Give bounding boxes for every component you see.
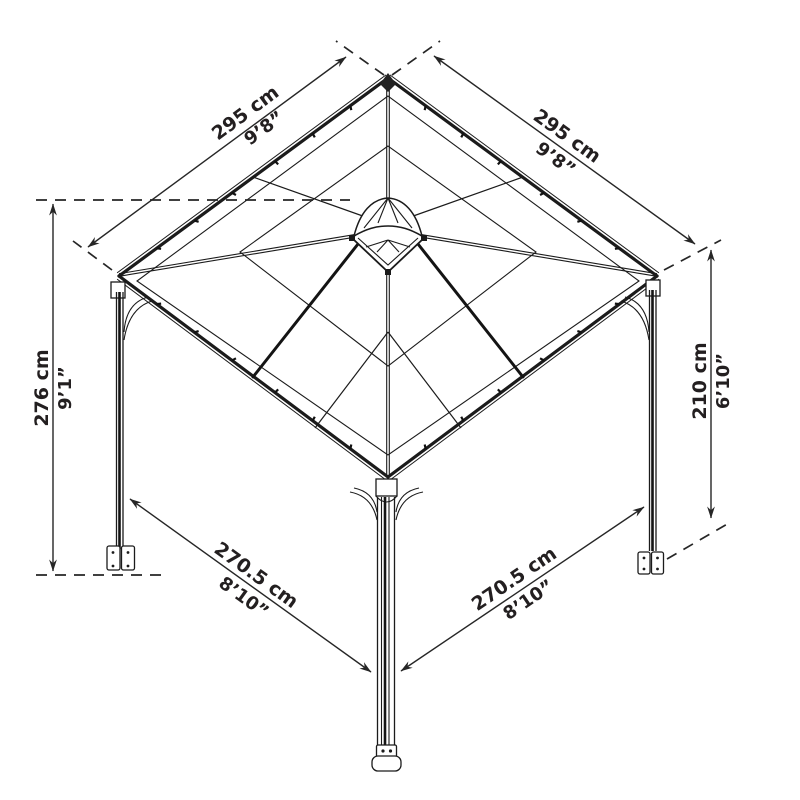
diagram-line: [421, 235, 427, 241]
diagram-line: [124, 301, 152, 340]
post-front: [350, 479, 423, 747]
base-plate-left: [107, 546, 135, 570]
diagram-canvas: 295 cm 9’8” 295 cm 9’8” 276 cm 9’1” 210 …: [0, 0, 800, 800]
dim-roof-edge-right: 295 cm 9’8”: [434, 56, 695, 244]
diagram-line: [112, 565, 115, 568]
diagram-line: [418, 244, 523, 377]
eave-tick: [350, 106, 351, 110]
diagram-line: [119, 232, 372, 274]
diagram-line: [127, 565, 130, 568]
diagram-line: [643, 557, 646, 560]
right-base-extension: [667, 523, 729, 559]
dimension-line: [130, 499, 371, 672]
diagram-line: [381, 749, 384, 752]
diagram-line: [388, 332, 461, 428]
eave-tick: [498, 161, 501, 164]
diagram-line: [389, 749, 392, 752]
apex-extension-left: [336, 41, 384, 75]
diagram-line: [404, 232, 657, 274]
eave-tick: [232, 193, 236, 195]
gazebo-dimension-diagram: 295 cm 9’8” 295 cm 9’8” 276 cm 9’1” 210 …: [0, 0, 800, 800]
diagram-line: [112, 551, 115, 554]
eave-tick: [275, 389, 278, 392]
diagram-line: [385, 269, 391, 275]
diagram-line: [621, 301, 649, 340]
eave-tick: [540, 358, 544, 360]
post-right: [621, 280, 660, 551]
eave-tick: [540, 193, 544, 195]
dimension-line: [88, 57, 346, 247]
dim-post-span-left: 270.5 cm 8’10”: [130, 499, 371, 672]
eave-tick: [615, 248, 619, 249]
eave-tick: [232, 358, 236, 360]
diagram-line: [315, 332, 388, 428]
diagram-line: [376, 479, 397, 496]
dimension-label-imperial: 9’1”: [55, 366, 76, 410]
dimension-line: [434, 56, 695, 244]
eave-tick: [615, 304, 619, 305]
dim-post-span-right: 270.5 cm 8’10”: [401, 507, 644, 671]
eave-tick: [498, 389, 501, 392]
eave-tick: [157, 304, 161, 305]
eave-tick: [425, 106, 426, 110]
diagram-line: [127, 551, 130, 554]
diagram-line: [119, 234, 372, 276]
dimension-label-cm: 210 cm: [689, 342, 711, 419]
base-plate-front: [372, 745, 401, 771]
diagram-line: 295 cm 9’8”: [208, 81, 297, 163]
diagram-line: [643, 568, 646, 571]
diagram-line: [656, 568, 659, 571]
apex-cap: [380, 73, 396, 92]
eave-tick: [194, 221, 198, 222]
eave-tick: [577, 331, 581, 332]
diagram-line: [396, 492, 423, 520]
base-plate-right: [638, 552, 664, 574]
eave-tick: [425, 444, 426, 448]
apex-extension-right: [392, 41, 440, 75]
diagram-line: [253, 244, 358, 377]
eave-tick: [275, 161, 278, 164]
dim-height-total: 276 cm 9’1”: [31, 204, 76, 571]
post-left: [111, 282, 152, 549]
roof-struts: [315, 332, 461, 428]
diagram-line: [638, 552, 650, 574]
roof-vent-cap: [349, 198, 427, 275]
left-corner-extension: [73, 241, 112, 270]
diagram-line: [253, 177, 374, 220]
diagram-line: [117, 279, 386, 480]
dim-roof-edge-left: 295 cm 9’8”: [88, 57, 346, 247]
dimension-label-cm: 276 cm: [31, 349, 53, 426]
eave-tick: [157, 248, 161, 249]
right-corner-extension: [664, 240, 721, 270]
eave-tick: [577, 221, 581, 222]
diagram-line: [402, 177, 523, 220]
diagram-line: [372, 756, 401, 771]
diagram-line: [652, 552, 664, 574]
diagram-line: [350, 492, 377, 520]
dim-height-eave: 210 cm 6’10”: [689, 250, 734, 518]
diagram-line: 270.5 cm 8’10”: [195, 538, 302, 633]
dimension-label-imperial: 6’10”: [713, 353, 734, 409]
diagram-line: [404, 234, 657, 276]
diagram-line: [349, 235, 355, 241]
diagram-line: [390, 279, 659, 480]
eave-tick: [350, 444, 351, 448]
dimension-line: [401, 507, 644, 671]
eave-tick: [194, 331, 198, 332]
diagram-line: [656, 557, 659, 560]
